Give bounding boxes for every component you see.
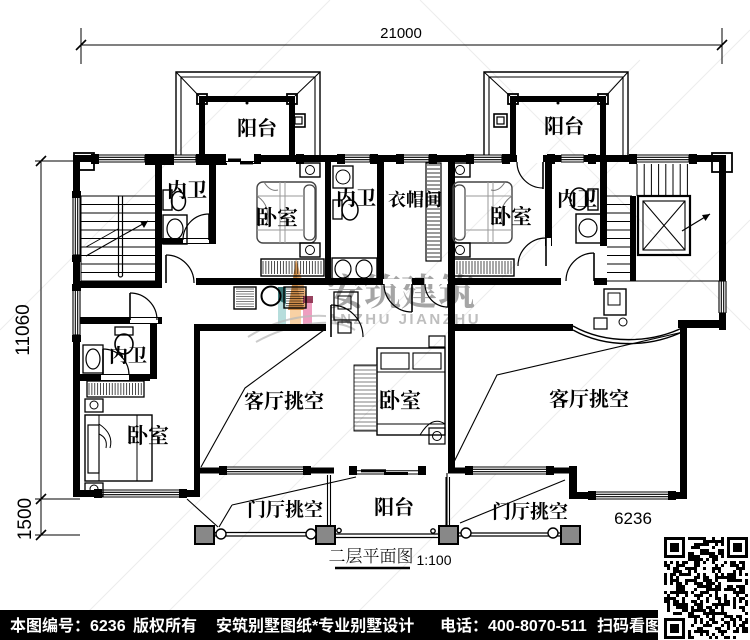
svg-text:21000: 21000 (380, 25, 422, 42)
svg-text:400-8070-511: 400-8070-511 (488, 612, 587, 636)
svg-text:内卫: 内卫 (109, 341, 147, 368)
svg-text:阳台: 阳台 (237, 112, 278, 141)
svg-text:门厅挑空: 门厅挑空 (492, 497, 568, 524)
svg-text:6236: 6236 (614, 509, 652, 528)
svg-text:安筑别墅图纸*专业别墅设计: 安筑别墅图纸*专业别墅设计 (216, 612, 414, 636)
svg-text:内卫: 内卫 (336, 182, 376, 211)
svg-text:卧室: 卧室 (127, 420, 169, 450)
svg-text:衣帽间: 衣帽间 (388, 186, 442, 212)
svg-text:门厅挑空: 门厅挑空 (247, 495, 323, 522)
svg-text:卧室: 卧室 (379, 385, 421, 415)
svg-text:6236: 6236 (90, 612, 126, 636)
svg-text:阳台: 阳台 (544, 110, 585, 139)
svg-text:二层平面图: 二层平面图 (329, 542, 414, 567)
svg-text:卧室: 卧室 (256, 202, 298, 232)
svg-text:阳台: 阳台 (374, 491, 415, 520)
svg-text:1500: 1500 (15, 498, 36, 540)
svg-text:卧室: 卧室 (490, 201, 532, 231)
svg-text:1:100: 1:100 (416, 552, 451, 568)
svg-text:客厅挑空: 客厅挑空 (549, 383, 629, 412)
svg-text:版权所有: 版权所有 (133, 612, 197, 636)
svg-text:内卫: 内卫 (167, 174, 207, 203)
svg-text:11060: 11060 (13, 304, 34, 355)
svg-text:本图编号：: 本图编号： (10, 612, 90, 636)
svg-text:电话：: 电话： (440, 612, 488, 636)
svg-text:扫码看图: 扫码看图 (597, 612, 661, 636)
svg-text:客厅挑空: 客厅挑空 (244, 385, 324, 414)
svg-text:内卫: 内卫 (557, 183, 597, 212)
